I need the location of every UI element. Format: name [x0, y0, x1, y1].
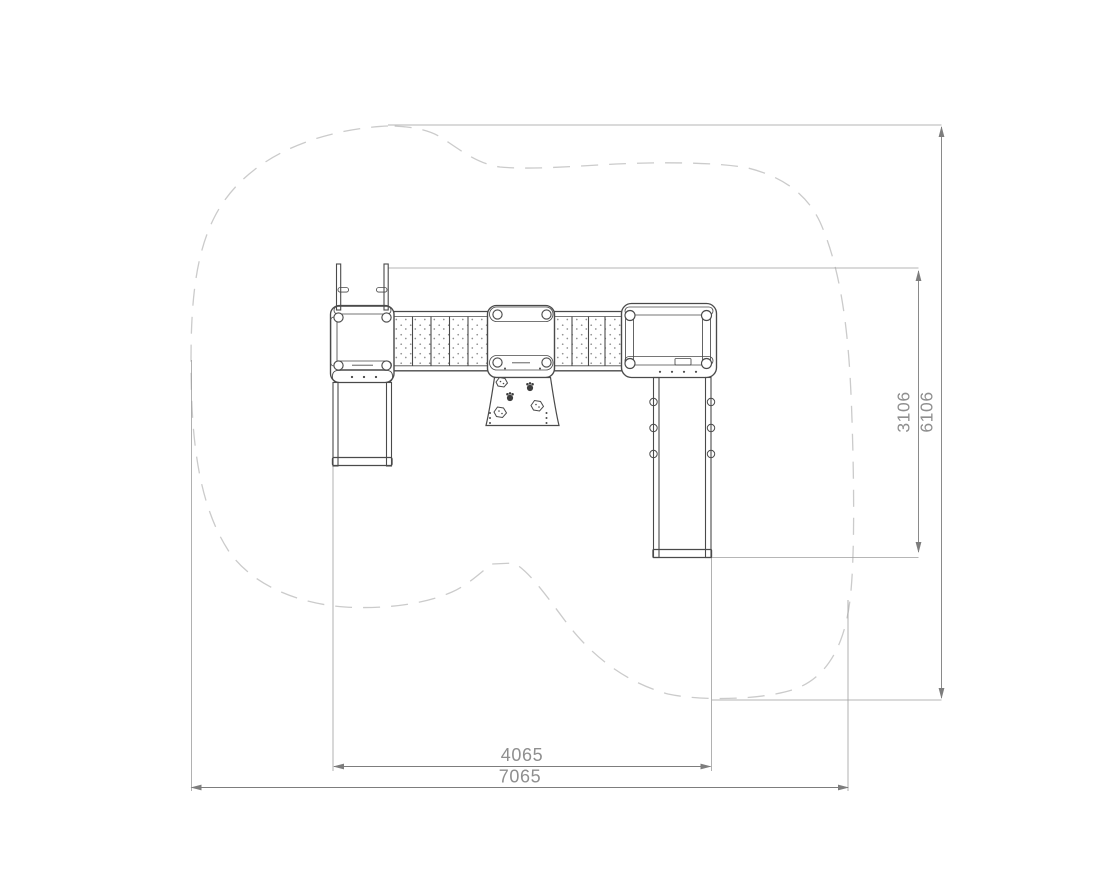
extension-lines — [192, 125, 942, 791]
arrow-left-icon — [191, 785, 202, 791]
corner-post-icon — [625, 311, 635, 321]
arrow-left-icon — [333, 764, 344, 770]
left-slide — [333, 383, 393, 467]
arrow-down-icon — [939, 688, 945, 699]
corner-post-icon — [334, 313, 343, 322]
handgrip-left-icon — [338, 288, 349, 293]
arrow-right-icon — [701, 764, 712, 770]
dim-label-bottom-inner: 4065 — [501, 745, 543, 765]
corner-post-icon — [542, 310, 551, 319]
dim-bottom-outer: 7065 — [191, 767, 850, 791]
bridge-left — [394, 312, 488, 371]
corner-post-icon — [702, 359, 712, 369]
dim-right-outer: 6106 — [917, 126, 945, 699]
handgrip-right-icon — [377, 288, 388, 293]
left-platform — [331, 306, 395, 383]
dim-label-right-outer: 6106 — [917, 391, 937, 432]
center-platform — [488, 306, 555, 378]
right-slide — [650, 378, 715, 558]
plan-drawing-page: 4065 7065 3106 6106 — [0, 0, 1110, 879]
arrow-up-icon — [939, 126, 945, 137]
dim-label-bottom-outer: 7065 — [499, 767, 541, 787]
platform-plate — [675, 359, 691, 366]
corner-post-icon — [625, 359, 635, 369]
corner-post-icon — [493, 358, 502, 367]
arrow-right-icon — [838, 785, 849, 791]
arrow-down-icon — [916, 542, 922, 553]
right-platform — [622, 304, 717, 378]
corner-post-icon — [493, 310, 502, 319]
corner-post-icon — [382, 313, 391, 322]
climbing-wall — [486, 368, 559, 426]
dim-label-right-inner: 3106 — [894, 391, 914, 432]
equipment-structure — [331, 264, 717, 558]
corner-post-icon — [382, 361, 391, 370]
corner-post-icon — [542, 358, 551, 367]
bridge-right — [555, 312, 622, 371]
arrow-up-icon — [916, 270, 922, 281]
access-stair — [337, 264, 389, 311]
dimension-annotations: 4065 7065 3106 6106 — [191, 126, 945, 790]
corner-post-icon — [334, 361, 343, 370]
corner-post-icon — [702, 311, 712, 321]
